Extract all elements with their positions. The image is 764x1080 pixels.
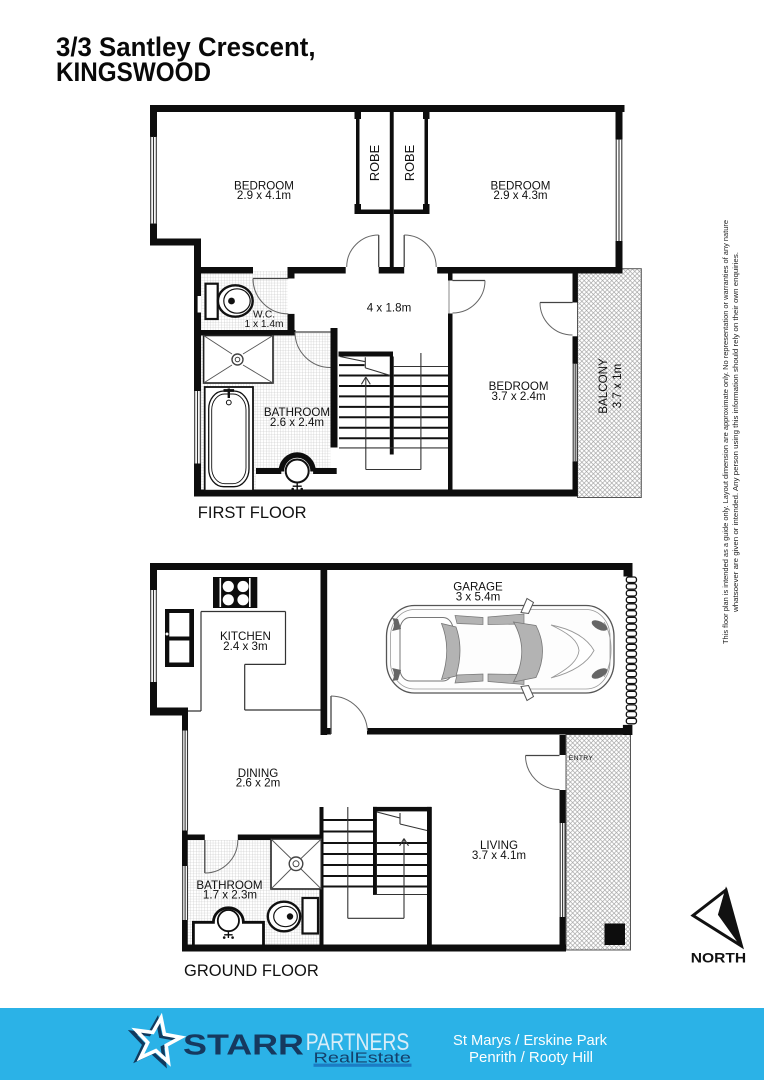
svg-text:St Marys / Erskine Park: St Marys / Erskine Park [453,1032,607,1049]
svg-text:2.9 x 4.3m: 2.9 x 4.3m [493,189,547,202]
svg-text:3.7 x 4.1m: 3.7 x 4.1m [472,849,526,862]
svg-text:GROUND FLOOR: GROUND FLOOR [184,962,319,980]
svg-text:BALCONY: BALCONY [597,358,610,414]
svg-text:2.9 x 4.1m: 2.9 x 4.1m [237,189,291,202]
svg-text:2.4 x 3m: 2.4 x 3m [223,640,267,653]
svg-text:3 x 5.4m: 3 x 5.4m [456,591,500,604]
svg-text:ROBE: ROBE [367,145,382,181]
svg-text:KINGSWOOD: KINGSWOOD [56,57,211,87]
svg-text:Penrith / Rooty Hill: Penrith / Rooty Hill [469,1049,593,1066]
svg-text:FIRST FLOOR: FIRST FLOOR [198,504,307,522]
svg-text:NORTH: NORTH [691,950,746,966]
svg-text:1 x 1.4m: 1 x 1.4m [244,319,283,330]
svg-text:2.6 x 2m: 2.6 x 2m [236,777,280,790]
svg-text:STARR: STARR [183,1030,304,1062]
svg-text:whatsoever are given or intend: whatsoever are given or intended. Any pe… [731,252,740,613]
svg-text:ROBE: ROBE [402,145,417,181]
svg-text:3.7 x 2.4m: 3.7 x 2.4m [492,390,546,403]
svg-text:3.7 x 1m: 3.7 x 1m [611,364,624,408]
svg-text:This floor plan is intended as: This floor plan is intended as a guide o… [721,220,730,644]
svg-text:2.6 x 2.4m: 2.6 x 2.4m [270,416,324,429]
svg-text:4 x 1.8m: 4 x 1.8m [367,302,411,315]
svg-text:ENTRY: ENTRY [569,755,594,762]
svg-text:1.7 x 2.3m: 1.7 x 2.3m [203,889,257,902]
